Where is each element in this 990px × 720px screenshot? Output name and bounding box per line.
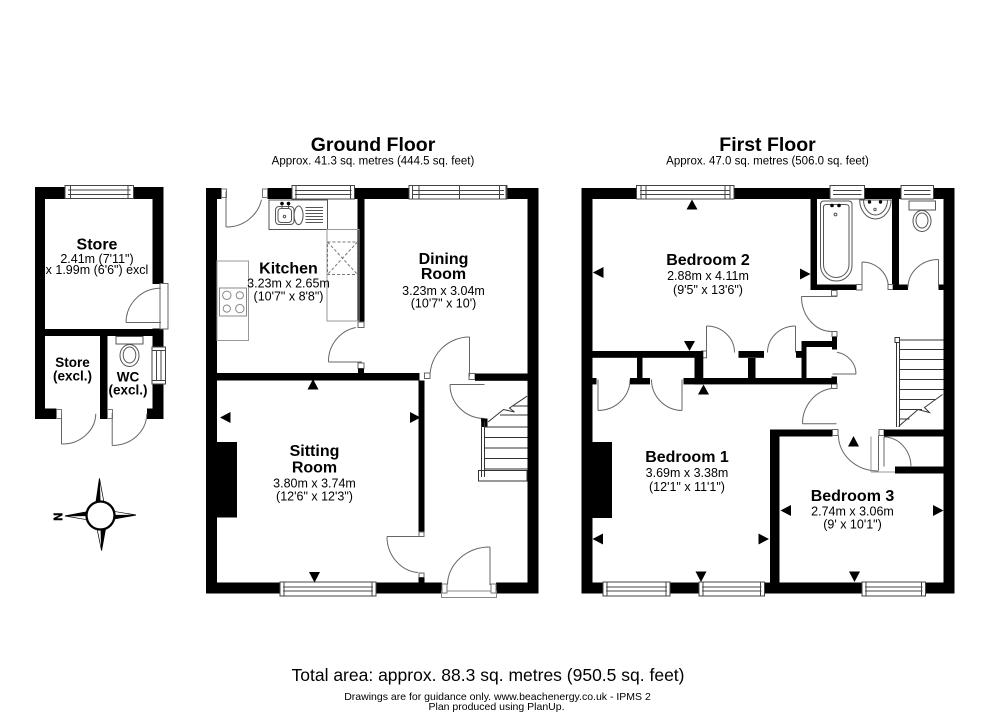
svg-text:3.23m x 2.65m: 3.23m x 2.65m xyxy=(247,277,330,291)
svg-text:Sitting: Sitting xyxy=(290,443,340,460)
svg-text:x 1.99m (6'6") excl: x 1.99m (6'6") excl xyxy=(46,263,149,277)
svg-text:First Floor: First Floor xyxy=(719,134,816,156)
svg-text:Kitchen: Kitchen xyxy=(259,261,318,278)
svg-text:(9'5" x 13'6"): (9'5" x 13'6") xyxy=(673,283,743,297)
svg-text:Ground Floor: Ground Floor xyxy=(311,134,436,156)
svg-text:(10'7" x 10'): (10'7" x 10') xyxy=(411,297,477,311)
svg-text:(12'6" x 12'3"): (12'6" x 12'3") xyxy=(276,490,353,504)
svg-text:(12'1" x 11'1"): (12'1" x 11'1") xyxy=(649,480,725,494)
svg-text:2.74m x 3.06m: 2.74m x 3.06m xyxy=(811,505,894,519)
svg-text:Room: Room xyxy=(421,266,466,283)
svg-text:(excl.): (excl.) xyxy=(108,383,147,398)
svg-text:(10'7" x 8'8"): (10'7" x 8'8") xyxy=(254,290,324,304)
svg-text:Approx. 41.3 sq. metres (444.5: Approx. 41.3 sq. metres (444.5 sq. feet) xyxy=(272,156,475,168)
svg-text:Approx. 47.0 sq. metres (506.0: Approx. 47.0 sq. metres (506.0 sq. feet) xyxy=(666,156,869,168)
svg-text:Bedroom 1: Bedroom 1 xyxy=(645,449,729,466)
svg-text:(excl.): (excl.) xyxy=(53,369,92,384)
svg-text:3.69m x 3.38m: 3.69m x 3.38m xyxy=(646,466,729,480)
svg-text:2.88m x 4.11m: 2.88m x 4.11m xyxy=(667,269,749,283)
svg-text:Store: Store xyxy=(77,237,118,254)
svg-text:Total area: approx. 88.3 sq. m: Total area: approx. 88.3 sq. metres (950… xyxy=(292,665,685,685)
svg-text:Bedroom 2: Bedroom 2 xyxy=(666,252,750,269)
svg-text:Room: Room xyxy=(292,460,337,477)
svg-text:Plan produced using PlanUp.: Plan produced using PlanUp. xyxy=(428,701,564,713)
svg-text:3.80m x 3.74m: 3.80m x 3.74m xyxy=(273,477,356,491)
svg-text:Bedroom 3: Bedroom 3 xyxy=(811,488,895,505)
svg-text:(9' x 10'1"): (9' x 10'1") xyxy=(823,518,882,532)
